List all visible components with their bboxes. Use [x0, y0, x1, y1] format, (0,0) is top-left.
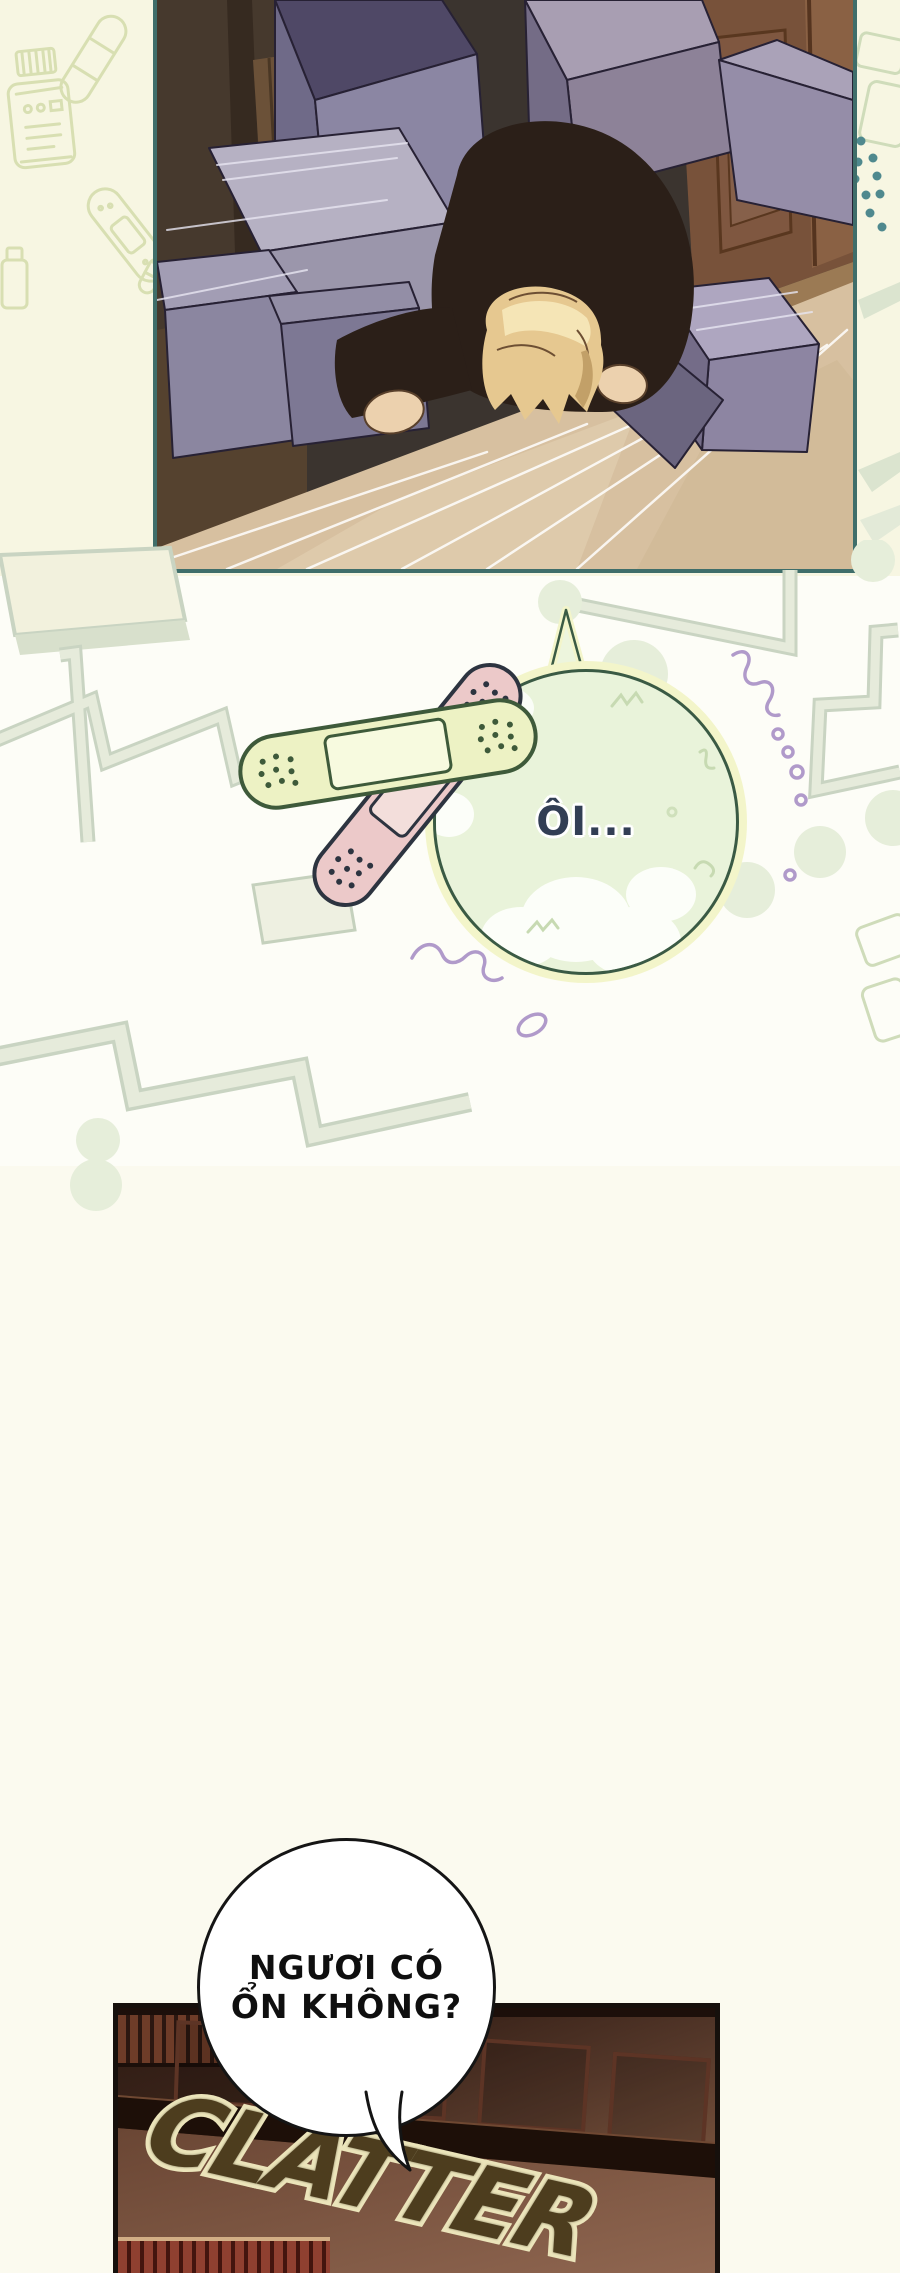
bubble-oi-text: ÔI... — [536, 799, 635, 845]
cloud-shape — [626, 867, 696, 922]
panel-accident-scene — [153, 0, 857, 573]
comic-page: ÔI... — [0, 0, 900, 2273]
bandaid-holes — [473, 713, 523, 759]
bandaid-pad — [322, 717, 453, 792]
bandaid-holes — [254, 748, 304, 794]
accident-scene-illustration — [157, 0, 853, 569]
cloud-shape — [481, 907, 561, 967]
bandaid-holes — [320, 839, 379, 898]
bubble-question-line1: NGƯƠI CÓ — [249, 1949, 444, 1988]
bubble-question-line2: ỔN KHÔNG? — [231, 1988, 462, 2027]
speech-bubble-question: NGƯƠI CÓ ỔN KHÔNG? — [197, 1838, 496, 2137]
radiator-slats — [118, 2237, 330, 2273]
